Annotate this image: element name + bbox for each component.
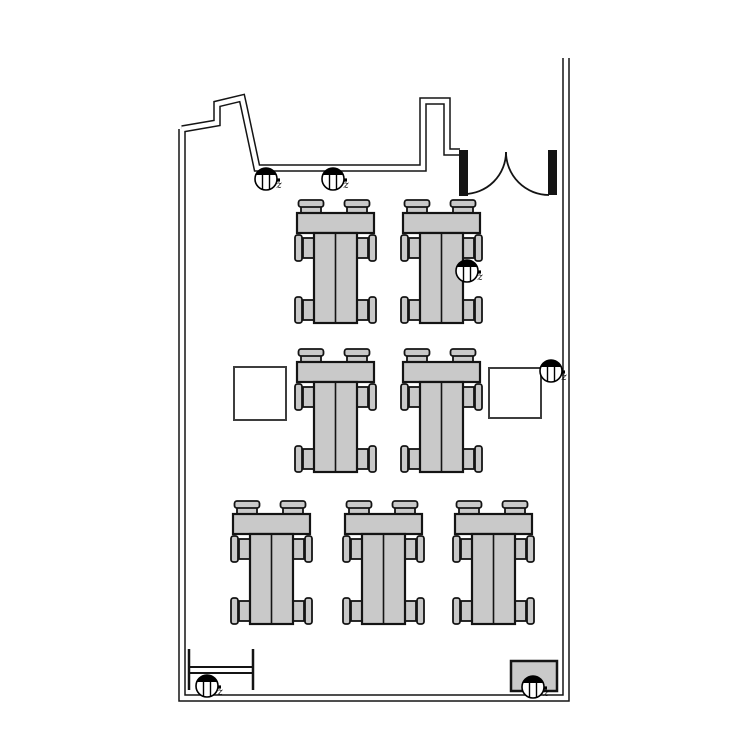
chair-seat bbox=[409, 238, 420, 258]
chair-back bbox=[457, 501, 482, 508]
chair-back bbox=[405, 349, 430, 356]
chair-back bbox=[417, 598, 424, 624]
chair-back bbox=[299, 200, 324, 207]
table-group-3 bbox=[295, 349, 376, 472]
chair-seat bbox=[409, 449, 420, 469]
door-jamb-2 bbox=[548, 150, 557, 195]
side-square-1 bbox=[234, 367, 286, 420]
chair-seat bbox=[293, 539, 304, 559]
sensor-label: z bbox=[561, 372, 568, 383]
chair-back bbox=[475, 384, 482, 410]
table-group-6 bbox=[343, 501, 424, 624]
chair-seat bbox=[303, 300, 314, 320]
chair-back bbox=[401, 235, 408, 261]
sensor-3: z bbox=[456, 260, 484, 283]
table-group-1 bbox=[295, 200, 376, 323]
table-top bbox=[297, 213, 374, 233]
table-group-7 bbox=[453, 501, 534, 624]
chair-back bbox=[503, 501, 528, 508]
chair-back bbox=[393, 501, 418, 508]
sensor-5: z bbox=[196, 675, 224, 698]
chair-back bbox=[401, 384, 408, 410]
sensor-label: z bbox=[343, 180, 350, 191]
chair-seat bbox=[357, 300, 368, 320]
chair-seat bbox=[463, 449, 474, 469]
floor-plan-drawing: zzzzzz bbox=[0, 0, 750, 750]
chair-back bbox=[369, 297, 376, 323]
sensor-label: z bbox=[543, 688, 550, 699]
chair-back bbox=[369, 384, 376, 410]
chair-seat bbox=[463, 300, 474, 320]
chair-back bbox=[475, 297, 482, 323]
chair-back bbox=[405, 200, 430, 207]
chair-seat bbox=[293, 601, 304, 621]
side-square-2 bbox=[489, 368, 541, 418]
table-top bbox=[345, 514, 422, 534]
chair-seat bbox=[409, 300, 420, 320]
chair-seat bbox=[463, 387, 474, 407]
sensor-cap bbox=[541, 360, 562, 367]
table-group-4 bbox=[401, 349, 482, 472]
chair-back bbox=[369, 446, 376, 472]
chair-seat bbox=[357, 387, 368, 407]
chair-seat bbox=[357, 238, 368, 258]
chair-seat bbox=[409, 387, 420, 407]
chair-seat bbox=[303, 449, 314, 469]
chair-seat bbox=[351, 539, 362, 559]
chair-back bbox=[231, 598, 238, 624]
chair-back bbox=[343, 598, 350, 624]
chair-back bbox=[299, 349, 324, 356]
chair-back bbox=[527, 536, 534, 562]
door-swing-arc-1 bbox=[464, 152, 506, 194]
chair-back bbox=[305, 598, 312, 624]
chair-back bbox=[401, 446, 408, 472]
chair-back bbox=[475, 446, 482, 472]
table-top bbox=[403, 362, 480, 382]
chair-seat bbox=[463, 238, 474, 258]
chair-back bbox=[347, 501, 372, 508]
chair-seat bbox=[351, 601, 362, 621]
chair-seat bbox=[239, 539, 250, 559]
chair-seat bbox=[461, 539, 472, 559]
chair-back bbox=[235, 501, 260, 508]
chair-back bbox=[345, 349, 370, 356]
sensor-label: z bbox=[217, 687, 224, 698]
chair-back bbox=[295, 446, 302, 472]
floor-plan-page: zzzzzz bbox=[0, 0, 750, 750]
door-swing-arc-2 bbox=[506, 152, 549, 195]
chair-seat bbox=[515, 539, 526, 559]
chair-back bbox=[231, 536, 238, 562]
table-top bbox=[233, 514, 310, 534]
chair-back bbox=[453, 536, 460, 562]
chair-seat bbox=[303, 387, 314, 407]
chair-back bbox=[401, 297, 408, 323]
chair-seat bbox=[405, 539, 416, 559]
sensor-label: z bbox=[477, 272, 484, 283]
table-top bbox=[455, 514, 532, 534]
table-group-5 bbox=[231, 501, 312, 624]
chair-back bbox=[453, 598, 460, 624]
sensor-cap bbox=[197, 675, 218, 682]
chair-back bbox=[295, 235, 302, 261]
wall-outline-2 bbox=[182, 98, 460, 168]
chair-seat bbox=[515, 601, 526, 621]
chair-back bbox=[475, 235, 482, 261]
chair-seat bbox=[303, 238, 314, 258]
chair-seat bbox=[405, 601, 416, 621]
wall-cavity-2 bbox=[182, 98, 460, 168]
chair-back bbox=[527, 598, 534, 624]
chair-back bbox=[451, 200, 476, 207]
chair-back bbox=[417, 536, 424, 562]
chair-back bbox=[295, 384, 302, 410]
sensor-label: z bbox=[276, 180, 283, 191]
double-door bbox=[459, 150, 557, 196]
chair-back bbox=[451, 349, 476, 356]
chair-back bbox=[343, 536, 350, 562]
chair-back bbox=[345, 200, 370, 207]
chair-back bbox=[369, 235, 376, 261]
table-top bbox=[403, 213, 480, 233]
chair-back bbox=[281, 501, 306, 508]
chair-seat bbox=[461, 601, 472, 621]
chair-back bbox=[305, 536, 312, 562]
chair-seat bbox=[357, 449, 368, 469]
chair-seat bbox=[239, 601, 250, 621]
table-top bbox=[297, 362, 374, 382]
chair-back bbox=[295, 297, 302, 323]
door-jamb-1 bbox=[459, 150, 468, 196]
